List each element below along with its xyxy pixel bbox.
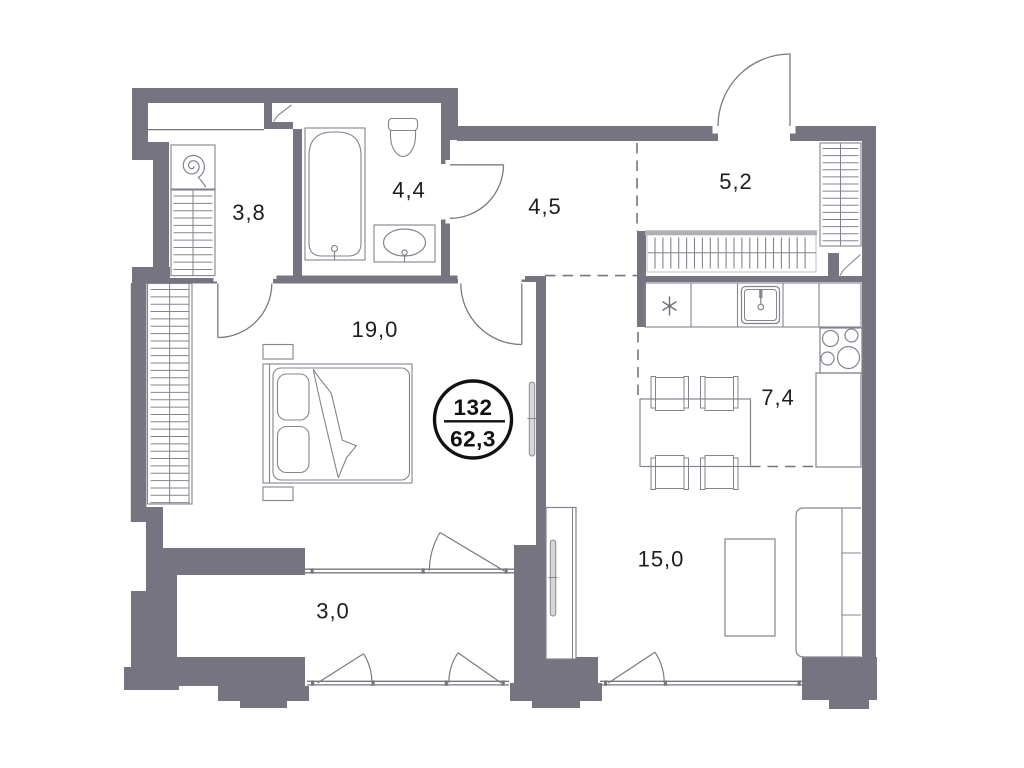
- svg-text:15,0: 15,0: [638, 547, 685, 572]
- svg-text:3,0: 3,0: [316, 599, 350, 624]
- svg-text:7,4: 7,4: [761, 385, 795, 410]
- svg-text:5,2: 5,2: [719, 169, 753, 194]
- svg-text:62,3: 62,3: [450, 427, 496, 452]
- svg-text:4,4: 4,4: [392, 178, 426, 203]
- svg-text:19,0: 19,0: [352, 317, 399, 342]
- svg-text:4,5: 4,5: [528, 194, 562, 219]
- svg-text:3,8: 3,8: [232, 200, 266, 225]
- svg-text:132: 132: [453, 395, 492, 420]
